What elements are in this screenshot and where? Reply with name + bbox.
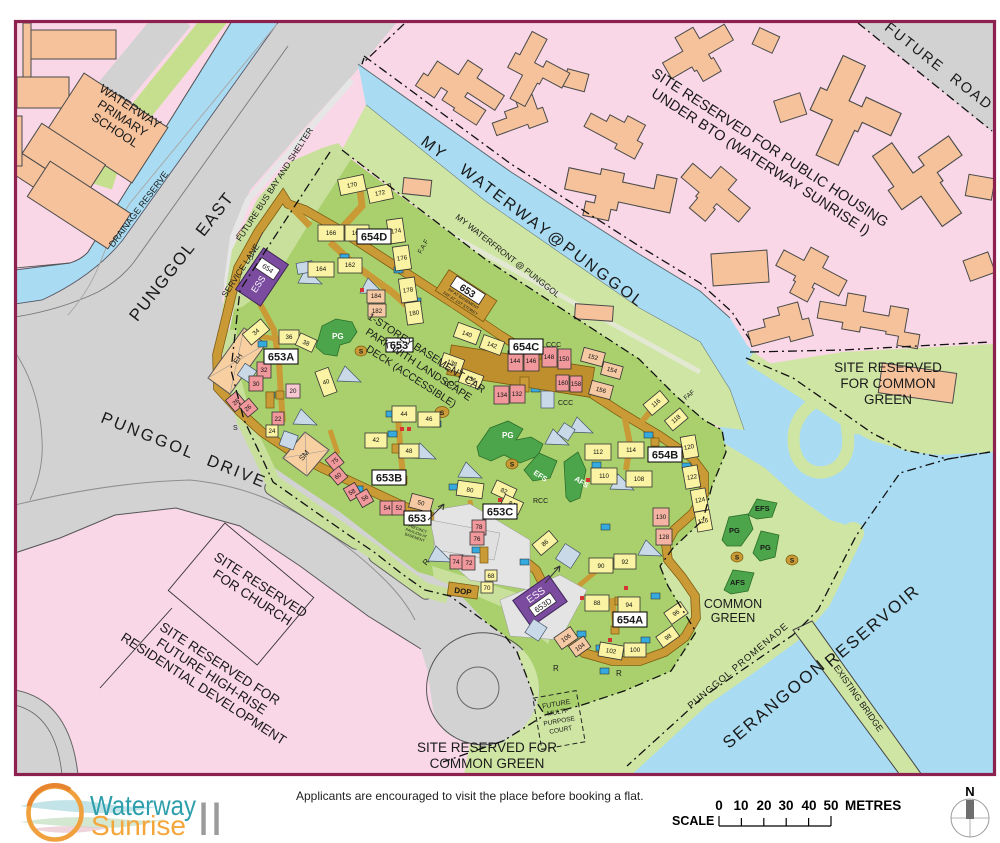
svg-text:SCALE: SCALE xyxy=(672,814,714,828)
svg-text:184: 184 xyxy=(371,293,382,300)
svg-text:22: 22 xyxy=(275,416,282,423)
svg-text:94: 94 xyxy=(626,602,633,609)
svg-text:92: 92 xyxy=(622,559,629,566)
svg-text:CCC: CCC xyxy=(444,381,459,388)
svg-text:RCC: RCC xyxy=(533,498,548,505)
svg-text:COMMON GREEN: COMMON GREEN xyxy=(430,756,545,771)
svg-text:20: 20 xyxy=(290,388,297,395)
svg-text:42: 42 xyxy=(373,437,380,444)
svg-text:653A: 653A xyxy=(268,352,294,364)
svg-text:SITE RESERVED: SITE RESERVED xyxy=(834,360,942,375)
svg-text:R: R xyxy=(616,669,622,678)
svg-text:70: 70 xyxy=(484,585,491,592)
svg-text:78: 78 xyxy=(476,524,483,531)
svg-text:EFS: EFS xyxy=(755,504,770,513)
svg-text:146: 146 xyxy=(526,358,537,365)
svg-text:164: 164 xyxy=(316,266,327,273)
svg-text:METRES: METRES xyxy=(845,798,901,813)
svg-text:88: 88 xyxy=(594,600,601,607)
svg-text:54: 54 xyxy=(384,505,391,512)
svg-text:654D: 654D xyxy=(361,232,387,244)
svg-text:150: 150 xyxy=(559,356,570,363)
svg-text:S: S xyxy=(233,425,238,432)
svg-text:653B: 653B xyxy=(376,473,402,485)
svg-text:180: 180 xyxy=(408,309,420,317)
svg-text:160: 160 xyxy=(558,380,569,387)
svg-text:SITE RESERVED FOR: SITE RESERVED FOR xyxy=(417,740,557,755)
svg-text:90: 90 xyxy=(598,563,605,570)
svg-text:32: 32 xyxy=(261,367,268,374)
svg-text:Applicants are encouraged to v: Applicants are encouraged to visit the p… xyxy=(296,789,644,803)
svg-text:R: R xyxy=(553,664,559,673)
svg-text:72: 72 xyxy=(466,560,473,567)
svg-text:30: 30 xyxy=(253,381,260,388)
svg-text:130: 130 xyxy=(656,514,667,521)
svg-text:134: 134 xyxy=(497,392,508,399)
svg-text:II: II xyxy=(197,792,223,843)
svg-text:112: 112 xyxy=(593,449,603,456)
svg-text:COMMON: COMMON xyxy=(704,597,762,611)
svg-text:50: 50 xyxy=(823,798,838,813)
svg-text:176: 176 xyxy=(396,254,408,262)
svg-text:CCC: CCC xyxy=(558,400,573,407)
svg-text:S: S xyxy=(735,555,740,562)
svg-text:110: 110 xyxy=(599,473,609,480)
svg-text:S: S xyxy=(440,410,445,417)
svg-text:S: S xyxy=(790,558,795,565)
svg-text:20: 20 xyxy=(756,798,771,813)
svg-text:30: 30 xyxy=(778,798,793,813)
svg-text:AFS: AFS xyxy=(730,578,745,587)
svg-text:74: 74 xyxy=(453,559,460,566)
svg-text:132: 132 xyxy=(512,391,523,398)
svg-text:PG: PG xyxy=(760,543,771,552)
svg-text:PG: PG xyxy=(332,332,344,341)
svg-text:S: S xyxy=(510,462,515,469)
svg-text:148: 148 xyxy=(544,354,555,361)
svg-text:108: 108 xyxy=(634,476,645,483)
svg-text:653: 653 xyxy=(408,513,426,525)
svg-text:44: 44 xyxy=(401,411,408,418)
svg-text:174: 174 xyxy=(390,227,402,235)
svg-text:114: 114 xyxy=(626,447,636,454)
svg-text:10: 10 xyxy=(733,798,748,813)
svg-text:654B: 654B xyxy=(652,450,678,462)
svg-text:CCC: CCC xyxy=(546,342,561,349)
svg-text:52: 52 xyxy=(396,505,403,512)
svg-text:N: N xyxy=(965,784,974,799)
svg-text:0: 0 xyxy=(715,798,723,813)
svg-text:144: 144 xyxy=(510,358,521,365)
svg-text:24: 24 xyxy=(269,428,276,435)
svg-text:100: 100 xyxy=(630,647,641,654)
svg-text:178: 178 xyxy=(402,286,414,294)
svg-text:GREEN: GREEN xyxy=(864,392,912,407)
svg-text:128: 128 xyxy=(659,534,670,541)
svg-text:Sunrise: Sunrise xyxy=(91,810,186,841)
svg-text:PG: PG xyxy=(729,526,740,535)
svg-text:FOR COMMON: FOR COMMON xyxy=(840,376,935,391)
svg-text:PG: PG xyxy=(502,431,514,440)
svg-text:68: 68 xyxy=(488,573,495,580)
svg-text:46: 46 xyxy=(426,416,433,423)
svg-text:653C: 653C xyxy=(487,507,513,519)
svg-text:76: 76 xyxy=(474,536,481,543)
svg-text:166: 166 xyxy=(326,230,337,237)
svg-text:36: 36 xyxy=(286,334,293,341)
svg-text:S: S xyxy=(359,349,364,356)
svg-text:GREEN: GREEN xyxy=(711,611,755,625)
svg-text:48: 48 xyxy=(406,448,413,455)
svg-text:158: 158 xyxy=(571,381,582,388)
svg-text:40: 40 xyxy=(801,798,816,813)
svg-text:654C: 654C xyxy=(513,342,539,354)
svg-text:654A: 654A xyxy=(617,615,643,627)
svg-text:162: 162 xyxy=(345,262,356,269)
